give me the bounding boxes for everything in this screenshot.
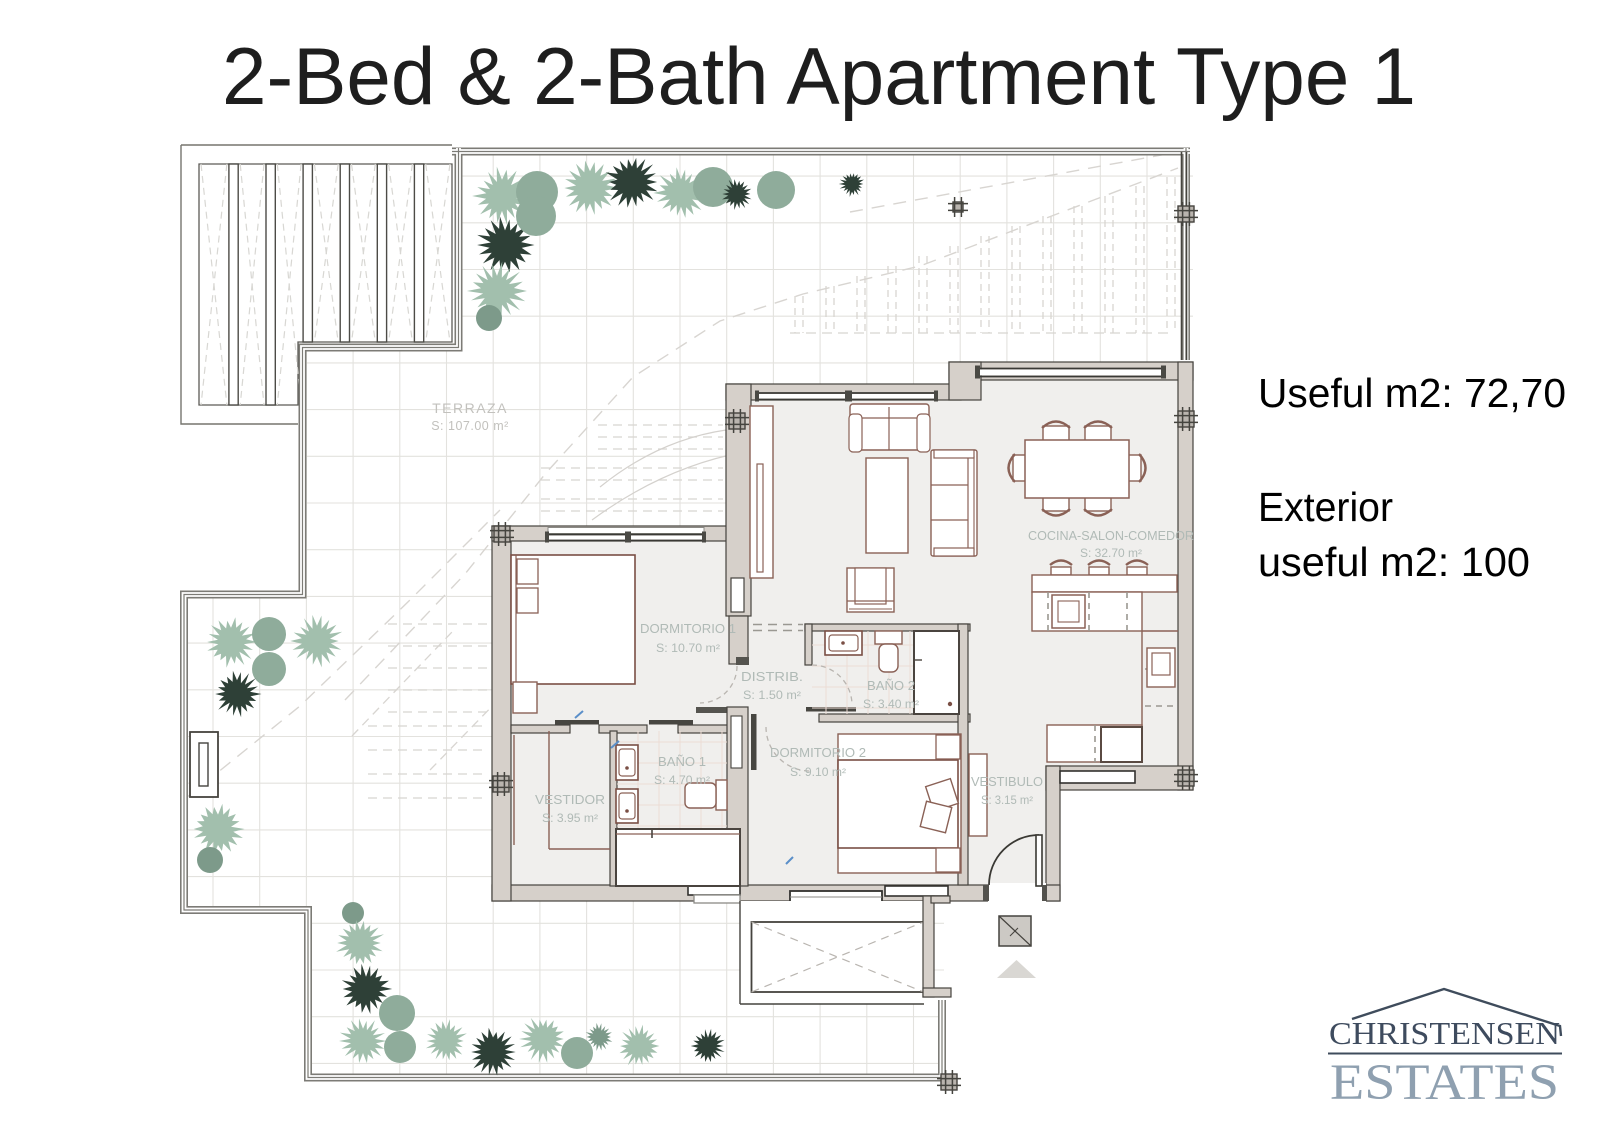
svg-text:DISTRIB.: DISTRIB. [741, 670, 803, 684]
svg-text:DORMITORIO 2: DORMITORIO 2 [770, 746, 866, 760]
svg-text:S: 107.00 m²: S: 107.00 m² [431, 419, 509, 433]
svg-text:TERRAZA: TERRAZA [432, 400, 508, 416]
svg-text:CHRISTENSEN: CHRISTENSEN [1329, 1016, 1560, 1051]
svg-text:2-Bed & 2-Bath Apartment Type: 2-Bed & 2-Bath Apartment Type 1 [222, 32, 1416, 122]
svg-text:BAÑO 1: BAÑO 1 [658, 755, 706, 769]
svg-text:S: 10.70 m²: S: 10.70 m² [656, 643, 720, 655]
svg-text:VESTIBULO: VESTIBULO [971, 775, 1043, 789]
svg-text:COCINA-SALON-COMEDOR: COCINA-SALON-COMEDOR [1028, 529, 1194, 543]
svg-text:Useful m2: 72,70: Useful m2: 72,70 [1258, 370, 1566, 416]
svg-text:S: 32.70 m²: S: 32.70 m² [1080, 548, 1142, 560]
svg-text:S: 3.15 m²: S: 3.15 m² [981, 795, 1033, 807]
svg-text:BAÑO 2: BAÑO 2 [867, 679, 915, 693]
svg-text:Exterior: Exterior [1258, 484, 1393, 530]
svg-text:S: 9.10 m²: S: 9.10 m² [790, 767, 846, 779]
svg-text:S: 1.50 m²: S: 1.50 m² [743, 690, 801, 702]
svg-text:S: 4.70 m²: S: 4.70 m² [654, 775, 710, 787]
svg-text:S: 3.40 m²: S: 3.40 m² [863, 699, 919, 711]
svg-text:ESTATES: ESTATES [1330, 1055, 1559, 1111]
svg-text:VESTIDOR: VESTIDOR [535, 793, 605, 807]
svg-text:S: 3.95 m²: S: 3.95 m² [542, 813, 598, 825]
svg-text:useful m2: 100: useful m2: 100 [1258, 539, 1530, 585]
svg-text:DORMITORIO 1: DORMITORIO 1 [640, 622, 736, 636]
